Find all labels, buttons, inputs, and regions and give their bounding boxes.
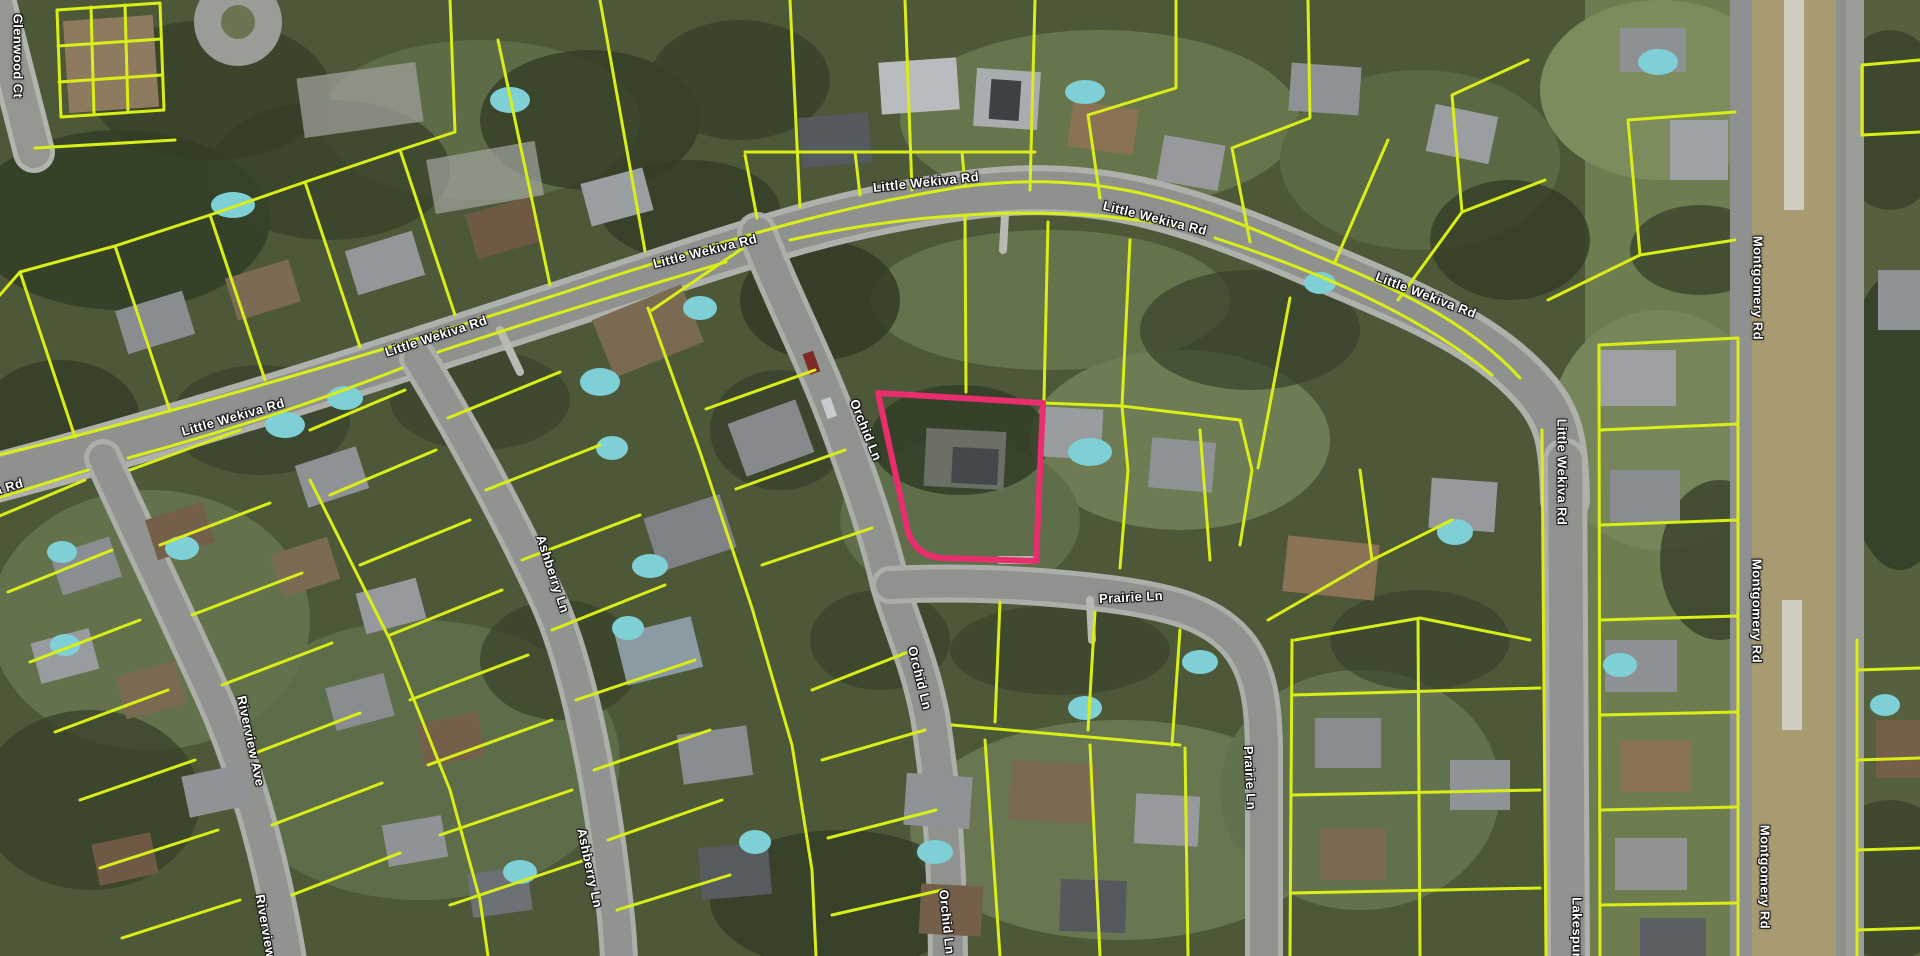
map-viewport[interactable]: Glenwood CtLittle Wekiva RdLittle Wekiva… xyxy=(0,0,1920,956)
aerial-basemap xyxy=(0,0,1920,956)
